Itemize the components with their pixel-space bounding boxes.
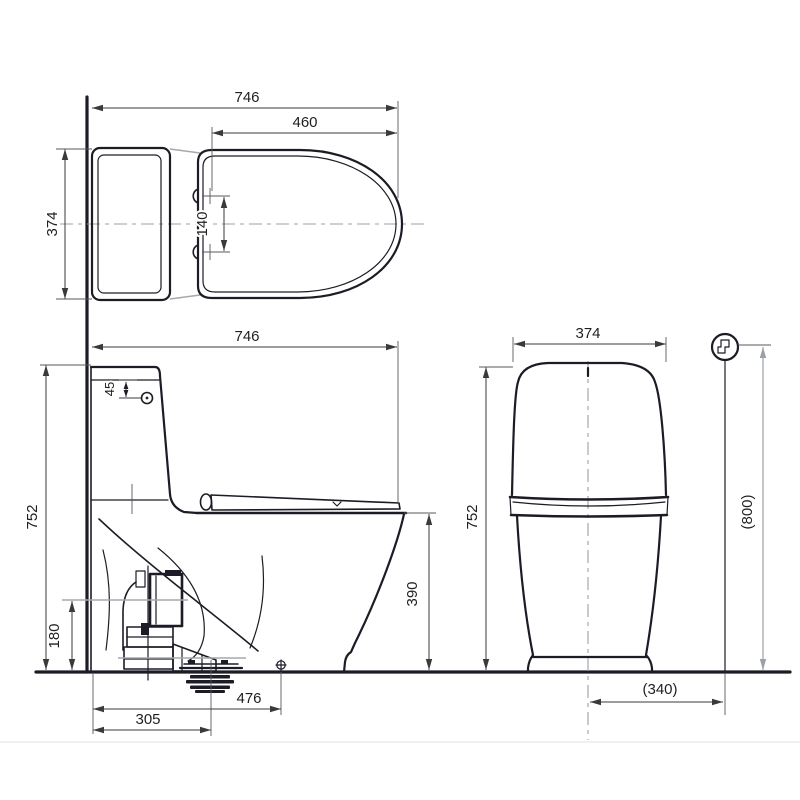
technical-drawing-canvas: 746 460 374 140 45: [0, 0, 800, 800]
rim-band-left-edge: [510, 497, 511, 515]
side-view: 45: [62, 367, 406, 736]
dim-front-tank-width: 374: [575, 325, 600, 342]
dim-side-overall-depth: 746: [234, 328, 259, 345]
bowl-left-edge: [517, 516, 533, 655]
tank-front-edge: [155, 367, 197, 513]
dim-trap-height: 180: [46, 623, 63, 648]
drain-stack-3: [190, 686, 230, 690]
top-view: [60, 148, 424, 300]
rim-band-right-edge: [667, 497, 668, 515]
dim-rim-height: 390: [404, 581, 421, 606]
dim-drain-offset: 305: [135, 711, 160, 728]
tank-front-outline: [512, 363, 666, 495]
flange-bolt-right: [221, 660, 228, 664]
rim-band-curve: [513, 502, 665, 506]
water-supply-valve-icon: [712, 334, 738, 360]
dim-top-seat-length: 460: [292, 114, 317, 131]
dim-hinge-hole-spacing: 140: [194, 211, 211, 236]
seat-profile: [211, 495, 400, 510]
dim-lid-button-offset: 45: [102, 382, 117, 396]
base-foot-right: [646, 655, 652, 671]
supply-valve-glyph: [718, 340, 729, 353]
bowl-hidden-edge-bottom: [170, 295, 200, 299]
bowl-inner-right-curve: [250, 556, 264, 648]
dim-front-overall-height: 752: [464, 504, 481, 529]
drain-stack-2: [186, 680, 234, 684]
dim-side-overall-height: 752: [24, 504, 41, 529]
tank-top-outline: [92, 148, 170, 300]
arrow-45-up: [124, 382, 129, 389]
base-foot-left: [528, 655, 533, 671]
rim-band-bottom: [511, 515, 667, 517]
overflow-tube: [136, 571, 145, 587]
bowl-front-profile: [344, 514, 404, 672]
arrow-45-down: [124, 390, 129, 397]
rim-band-top: [510, 497, 668, 500]
dim-top-overall-width: 746: [234, 89, 259, 106]
valve-cap: [165, 570, 181, 576]
drain-stack-1: [190, 675, 230, 679]
floor-bolt: [276, 660, 286, 680]
dim-floor-bolt-offset: 476: [236, 690, 261, 707]
flush-button-dot: [146, 397, 149, 400]
bowl-right-edge: [646, 516, 661, 655]
front-view: [510, 334, 738, 740]
toilet-dimension-drawing: 746 460 374 140 45: [0, 0, 800, 800]
drain-stack-4: [195, 690, 225, 693]
dim-supply-height: (800): [739, 494, 756, 529]
flange-bolt-left: [188, 660, 195, 664]
trap-left-bulb: [123, 582, 136, 650]
dim-supply-offset: (340): [642, 681, 677, 698]
top-view-dimensions: 746 460 374 140: [44, 89, 398, 299]
seat-hinge-side: [201, 494, 212, 510]
seat-notch: [333, 502, 341, 506]
bowl-hidden-edge-top: [170, 149, 200, 153]
dim-top-depth: 374: [44, 211, 61, 236]
